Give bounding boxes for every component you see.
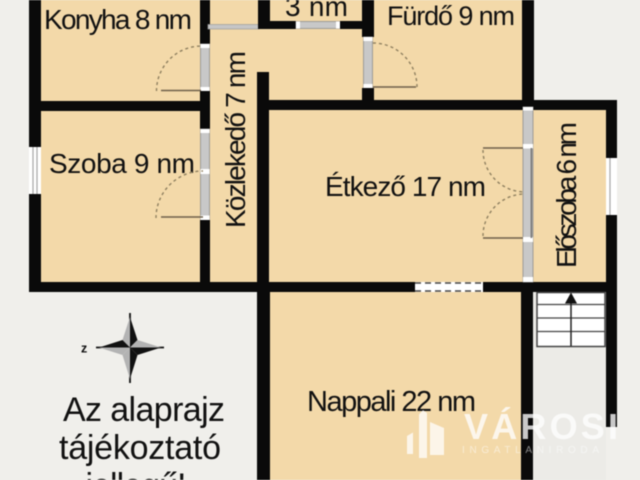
svg-text:Nappali 22 nm: Nappali 22 nm	[307, 386, 476, 418]
svg-text:Közlekedő 7 nm: Közlekedő 7 nm	[220, 51, 251, 228]
svg-text:Az alaprajz: Az alaprajz	[63, 391, 225, 429]
svg-text:Étkező 17 nm: Étkező 17 nm	[325, 171, 486, 202]
svg-text:Szoba 9 nm: Szoba 9 nm	[49, 148, 195, 179]
svg-text:3 nm: 3 nm	[285, 0, 348, 22]
svg-text:jellegű!: jellegű!	[85, 467, 187, 480]
svg-text:tájékoztató: tájékoztató	[59, 429, 221, 467]
svg-text:Előszoba 6 nm: Előszoba 6 nm	[551, 122, 582, 268]
svg-text:Fürdő 9 nm: Fürdő 9 nm	[387, 1, 515, 31]
svg-text:INGATLANIRODA: INGATLANIRODA	[462, 445, 603, 456]
svg-text:Konyha 8 nm: Konyha 8 nm	[44, 4, 192, 35]
svg-text:VÁROSI: VÁROSI	[464, 406, 618, 447]
svg-text:z: z	[81, 342, 87, 356]
